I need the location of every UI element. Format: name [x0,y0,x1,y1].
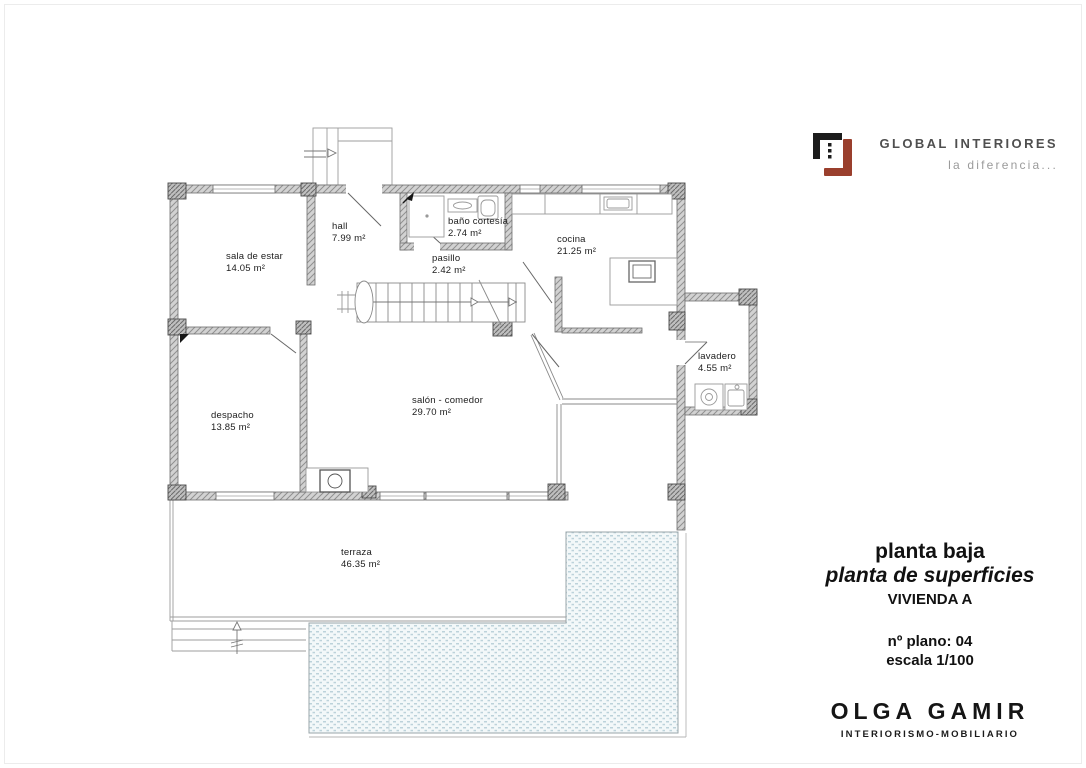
room-area: 14.05 m² [226,263,283,275]
laundry-fittings [695,384,747,410]
room-name: baño cortesía [448,216,508,228]
brand-name: GLOBAL INTERIORES [858,136,1058,151]
brand-logo: GLOBAL INTERIORES la diferencia... [812,128,1062,188]
room-label-terraza: terraza 46.35 m² [341,547,380,571]
room-label-salon-comedor: salón - comedor 29.70 m² [412,395,483,419]
room-label-lavadero: lavadero 4.55 m² [698,351,736,375]
room-name: hall [332,221,366,233]
terrace-steps [172,621,306,654]
drawing-sheet: { "brand": { "name": "GLOBAL INTERIORES"… [0,0,1086,768]
room-name: cocina [557,234,596,246]
room-name: lavadero [698,351,736,363]
fireplace-icon [306,468,368,492]
room-area: 7.99 m² [332,233,366,245]
room-label-pasillo: pasillo 2.42 m² [432,253,466,277]
room-area: 46.35 m² [341,559,380,571]
room-name: pasillo [432,253,466,265]
glazing [531,333,677,492]
kitchen-island [610,258,677,305]
room-area: 29.70 m² [412,407,483,419]
studio-name: OLGA GAMIR [800,698,1060,725]
title-scale: escala 1/100 [800,651,1060,670]
title-block: planta baja planta de superficies VIVIEN… [800,540,1060,670]
room-label-hall: hall 7.99 m² [332,221,366,245]
room-label-bano-cortesia: baño cortesía 2.74 m² [448,216,508,240]
staircase [337,280,525,325]
title-plan-number: nº plano: 04 [800,632,1060,651]
entry-porch [304,128,392,185]
room-name: sala de estar [226,251,283,263]
brand-tagline: la diferencia... [858,158,1058,172]
studio-logotype: OLGA GAMIR INTERIORISMO-MOBILIARIO [800,698,1060,740]
room-label-cocina: cocina 21.25 m² [557,234,596,258]
room-name: despacho [211,410,254,422]
room-area: 2.74 m² [448,228,508,240]
title-floor: planta baja [800,540,1060,564]
kitchen-counter [512,194,672,214]
room-area: 13.85 m² [211,422,254,434]
global-interiores-logo-icon [812,130,858,182]
room-area: 2.42 m² [432,265,466,277]
room-area: 21.25 m² [557,246,596,258]
room-name: terraza [341,547,380,559]
title-dwelling: VIVIENDA A [800,590,1060,610]
room-name: salón - comedor [412,395,483,407]
room-label-sala-de-estar: sala de estar 14.05 m² [226,251,283,275]
room-area: 4.55 m² [698,363,736,375]
studio-subtitle: INTERIORISMO-MOBILIARIO [800,729,1060,740]
room-label-despacho: despacho 13.85 m² [211,410,254,434]
title-plan-type: planta de superficies [800,564,1060,588]
